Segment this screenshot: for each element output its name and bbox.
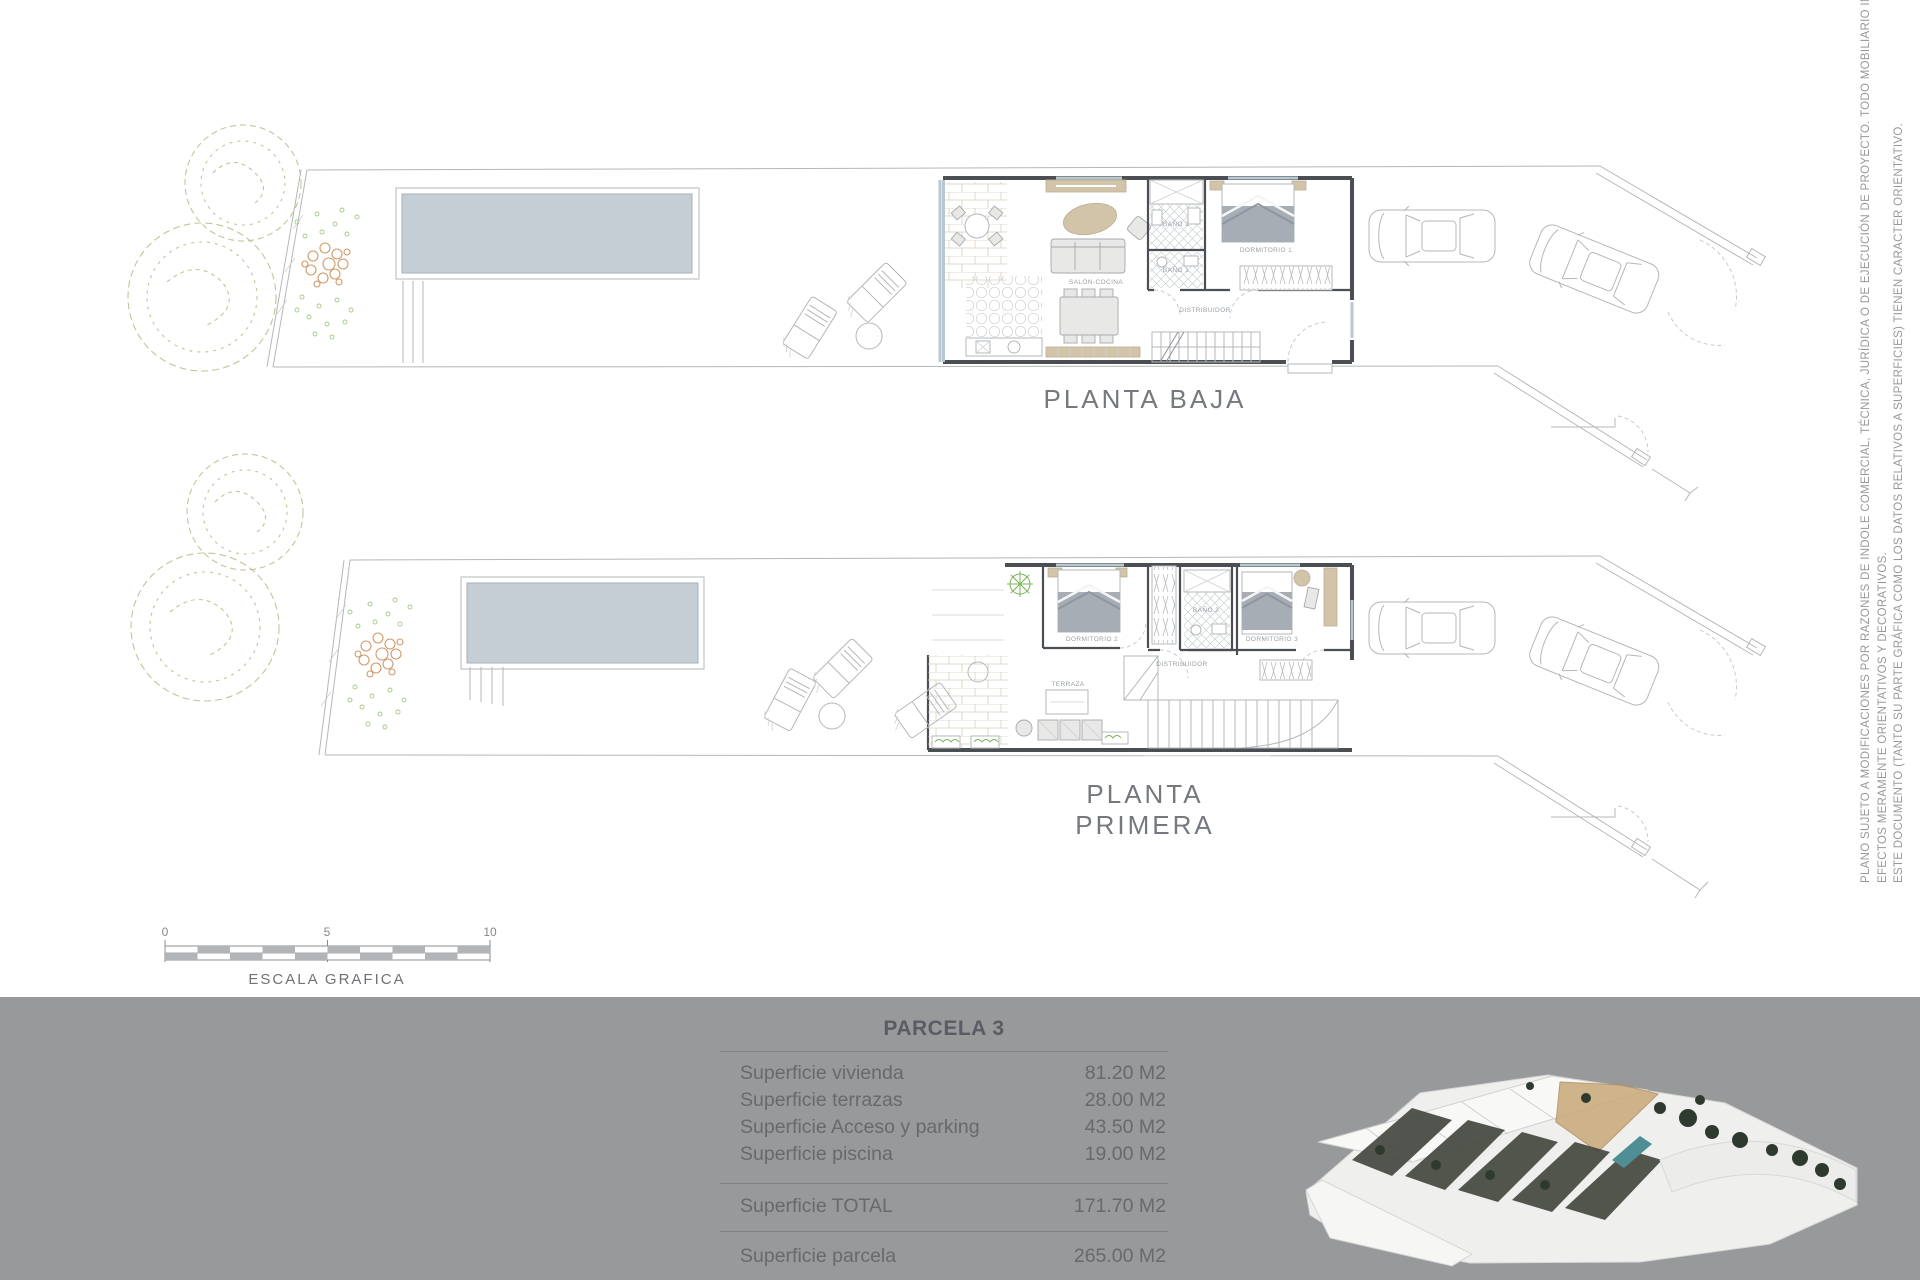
row-label: Superficie piscina: [740, 1141, 893, 1168]
sun-loungers: [758, 637, 873, 739]
table-row: Superficie terrazas 28.00 M2: [720, 1087, 1168, 1114]
garden-trees: [128, 125, 301, 371]
car: [1369, 598, 1495, 658]
rug: [1060, 199, 1119, 240]
row-value: 43.50 M2: [1085, 1114, 1166, 1141]
car: [1369, 206, 1495, 266]
divider: [720, 1183, 1168, 1184]
scale-bar: 0 5 10 ESCALA GRAFICA: [162, 925, 497, 988]
room-label: DORMITORIO 2: [1066, 636, 1118, 643]
scale-label: ESCALA GRAFICA: [248, 971, 405, 988]
row-value: 171.70 M2: [1074, 1193, 1166, 1220]
wardrobe: [1152, 566, 1176, 644]
stairs: [1152, 332, 1260, 362]
kitchen-run: [966, 338, 1042, 356]
scale-end: 10: [483, 925, 497, 939]
parcel-title: PARCELA 3: [720, 1014, 1168, 1044]
row-label: Superficie TOTAL: [740, 1193, 893, 1220]
pool: [396, 188, 699, 363]
plan-baja-title: PLANTA BAJA: [1015, 384, 1275, 415]
scale-mid: 5: [324, 925, 331, 939]
room-label: SALÓN-COCINA: [1069, 277, 1124, 286]
entrance: [1288, 322, 1332, 373]
bedroom-1: [1210, 181, 1306, 242]
room-label: DISTRIBUIDOR: [1156, 661, 1207, 668]
wardrobe-low: [1260, 660, 1312, 680]
bedroom-2: [1048, 568, 1127, 632]
table-row: Superficie Acceso y parking 43.50 M2: [720, 1114, 1168, 1141]
bench: [1046, 347, 1140, 357]
car: [1525, 218, 1664, 321]
sun-loungers: [776, 261, 907, 367]
dining-table: [1060, 289, 1118, 343]
room-label: DISTRIBUIDOR: [1179, 307, 1230, 314]
table-row-total: Superficie TOTAL 171.70 M2: [720, 1193, 1168, 1220]
garden-shrub: [295, 208, 359, 339]
pool: [461, 577, 704, 706]
parking-baja: [1369, 206, 1664, 320]
disclaimer-line: EFECTOS MERAMENTE ORIENTATIVOS Y DECORAT…: [1875, 8, 1892, 883]
plan-primera-title: PLANTA PRIMERA: [1015, 779, 1275, 841]
house-baja: SALÓN-COCINA BAÑO 2 BAÑO 1 DORMITORIO 1 …: [940, 178, 1352, 373]
room-label: DORMITORIO 3: [1246, 636, 1298, 643]
row-value: 81.20 M2: [1085, 1060, 1166, 1087]
divider: [720, 1231, 1168, 1232]
disclaimer-line: PLANO SUJETO A MODIFICACIONES POR RAZONE…: [1858, 8, 1875, 883]
row-value: 19.00 M2: [1085, 1141, 1166, 1168]
row-label: Superficie terrazas: [740, 1087, 903, 1114]
row-value: 28.00 M2: [1085, 1087, 1166, 1114]
table-row-parcela: Superficie parcela 265.00 M2: [720, 1243, 1168, 1270]
render-3d: [1306, 1075, 1857, 1266]
row-label: Superficie vivienda: [740, 1060, 904, 1087]
room-label: BAÑO 1: [1163, 265, 1189, 274]
plan-primera: DORMITORIO 2 BAÑO 3 DORMITORIO 3 TERRAZA…: [131, 454, 1765, 898]
potted-plant: [1007, 571, 1033, 597]
table-row: Superficie piscina 19.00 M2: [720, 1141, 1168, 1168]
parking-primera: [1369, 598, 1664, 712]
room-label: BAÑO 3: [1193, 605, 1219, 614]
wardrobe: [1240, 266, 1332, 290]
room-label: DORMITORIO 1: [1240, 247, 1292, 254]
room-label: TERRAZA: [1051, 681, 1084, 688]
car: [1525, 610, 1664, 713]
row-value: 265.00 M2: [1074, 1243, 1166, 1270]
room-label: BAÑO 2: [1163, 219, 1189, 228]
bathroom-2: [1150, 180, 1203, 250]
bedroom-3: [1242, 568, 1337, 634]
summary-table: PARCELA 3 Superficie vivienda 81.20 M2 S…: [720, 1014, 1168, 1270]
house-primera: DORMITORIO 2 BAÑO 3 DORMITORIO 3 TERRAZA…: [886, 565, 1352, 750]
plan-sheet: SALÓN-COCINA BAÑO 2 BAÑO 1 DORMITORIO 1 …: [0, 0, 1920, 1280]
terrace-furniture: [1016, 690, 1128, 744]
disclaimer-line: ESTE DOCUMENTO (TANTO SU PARTE GRÁFICA C…: [1891, 8, 1908, 883]
disclaimer-note: PLANO SUJETO A MODIFICACIONES POR RAZONE…: [1858, 8, 1910, 883]
plan-baja: SALÓN-COCINA BAÑO 2 BAÑO 1 DORMITORIO 1 …: [128, 125, 1765, 501]
row-label: Superficie Acceso y parking: [740, 1114, 980, 1141]
scale-start: 0: [162, 925, 169, 939]
divider: [720, 1051, 1168, 1052]
garden-trees: [131, 454, 303, 701]
pergola-slats: [932, 590, 1004, 640]
sofa: [1051, 239, 1125, 273]
garden-shrub: [348, 598, 412, 729]
table-row: Superficie vivienda 81.20 M2: [720, 1060, 1168, 1087]
row-label: Superficie parcela: [740, 1243, 896, 1270]
